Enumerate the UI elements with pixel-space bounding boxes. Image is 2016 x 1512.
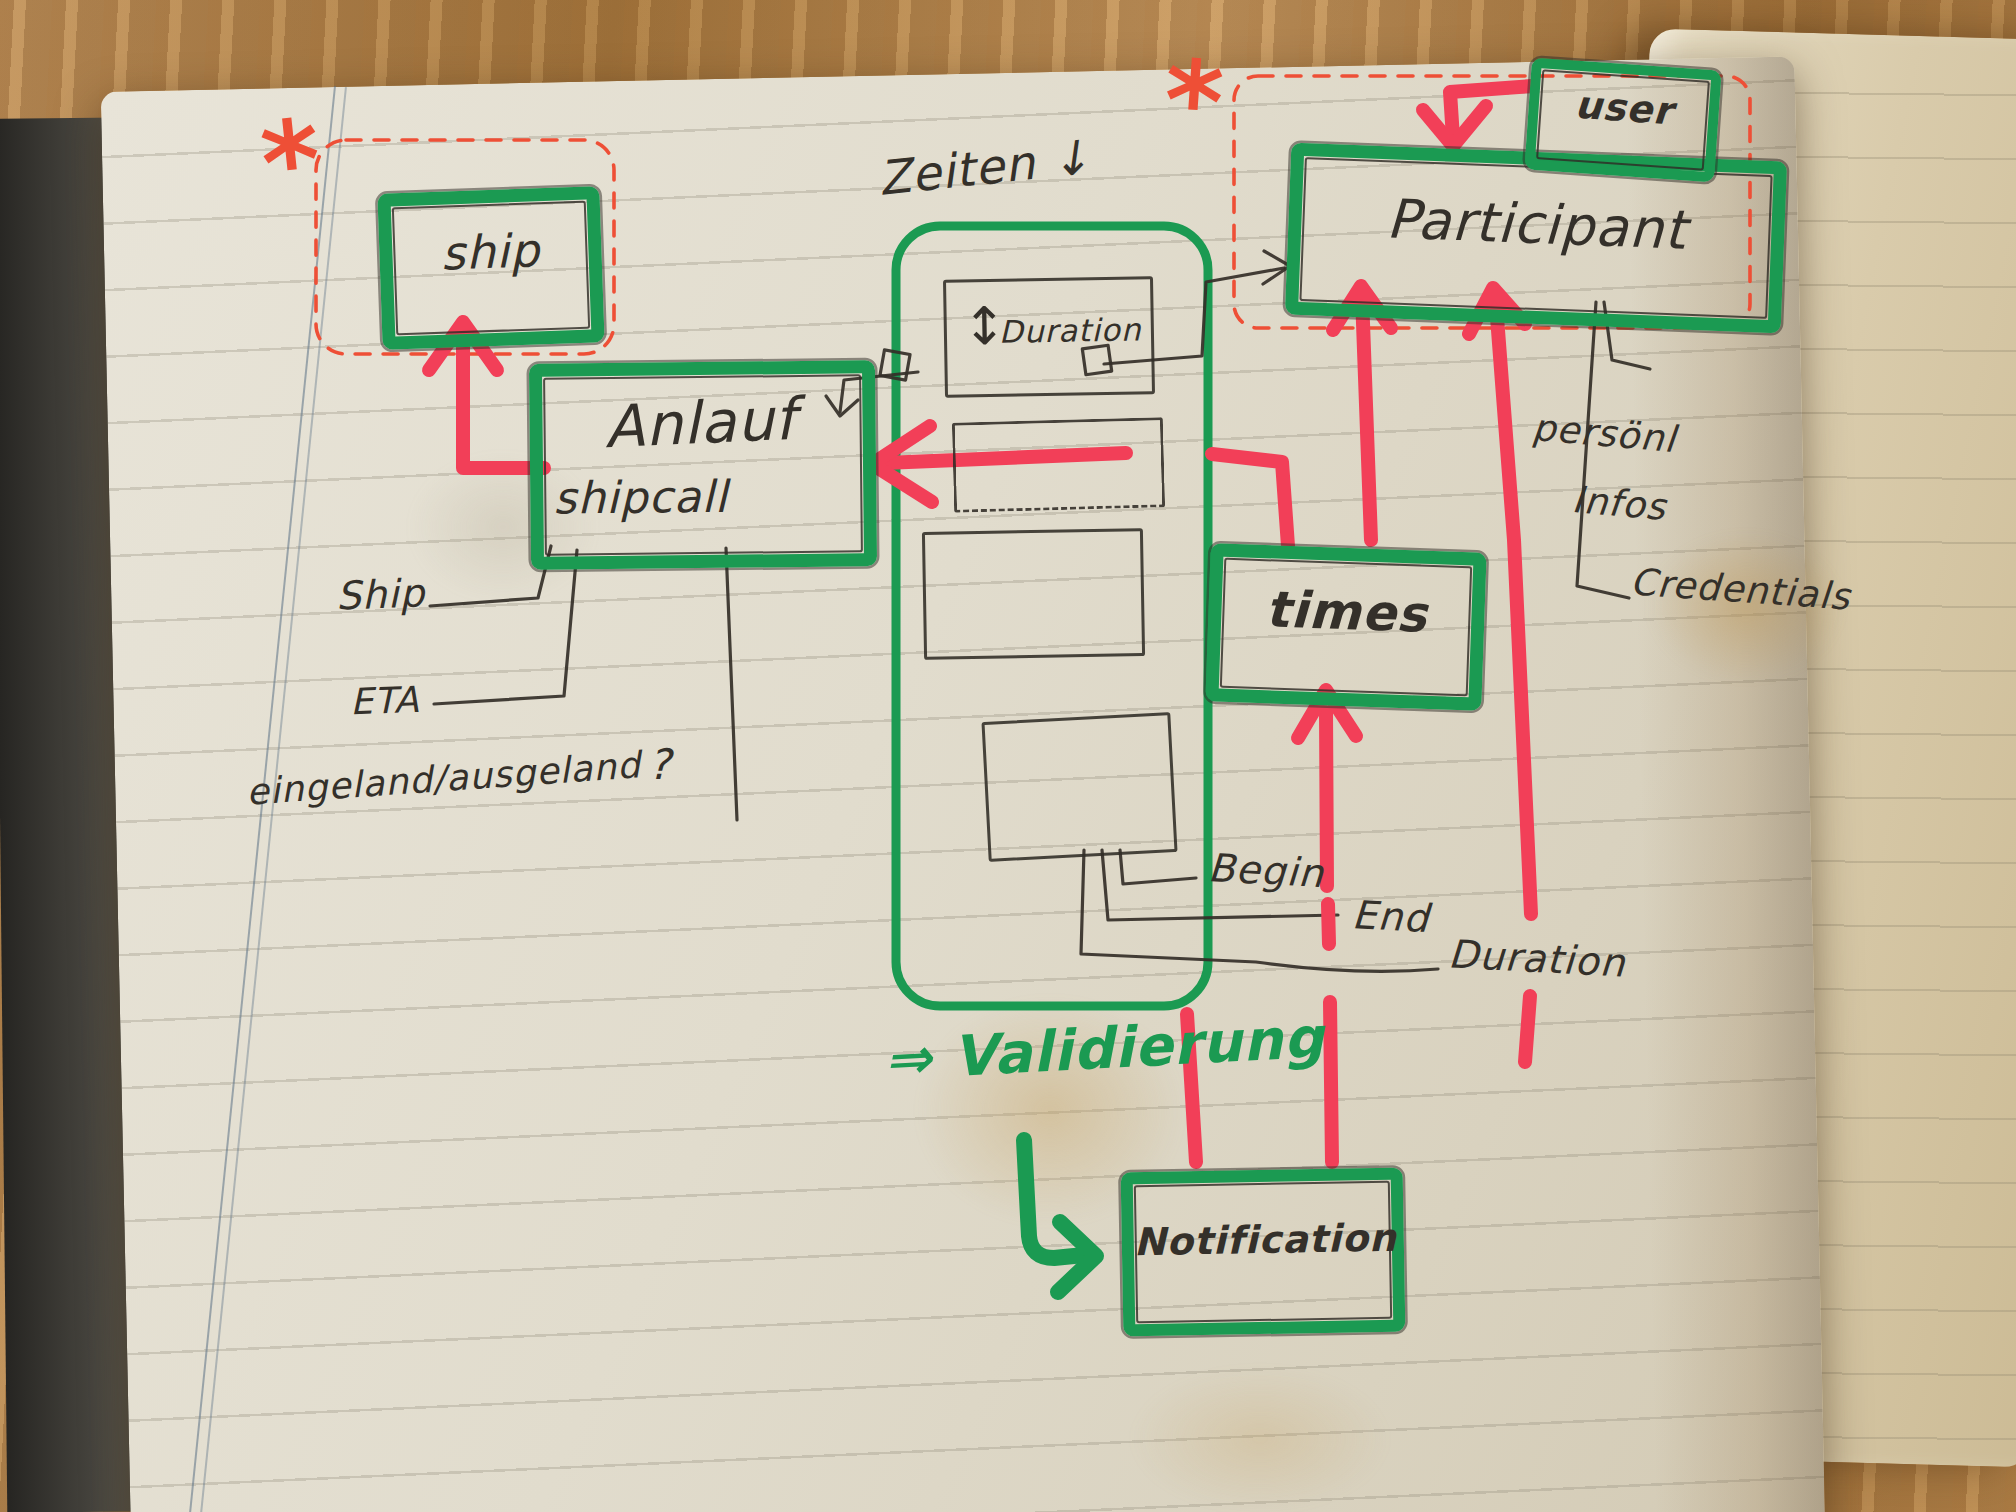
entity-duration-label: Duration [999,311,1142,349]
arrow-notification-to-times [1298,690,1356,1162]
label-eta-attribute: ETA [349,679,420,722]
connector-anchor-square [880,350,910,380]
time-slot-box-1 [952,417,1165,512]
diagram-layer: * * ship Anlauf shipcall Participant use… [0,0,2016,1512]
arrow-user-to-participant [1423,86,1532,146]
entity-ship-label: ship [392,222,590,283]
entity-shipcall-label: Anlauf [603,385,797,462]
label-question-mark: ? [648,740,671,789]
arrow-times-to-participant [1333,286,1391,540]
label-zeiten: Zeiten ↓ [876,129,1094,206]
entity-notification-label: Notification [1133,1216,1392,1264]
connector-eta-attribute [434,550,577,704]
label-duration-attribute: Duration [1447,931,1627,985]
entity-times-label: times [1221,579,1473,646]
entity-shipcall-sublabel: shipcall [553,471,728,524]
entity-ship: ship [377,186,604,350]
label-validation: ⇒ Validierung [883,1005,1326,1093]
label-personal-infos-line1: persönl [1530,406,1677,461]
entity-shipcall: Anlauf shipcall [529,360,877,570]
entity-user: user [1524,58,1721,183]
photo-of-notebook: * * ship Anlauf shipcall Participant use… [0,0,2016,1512]
arrow-validation-to-notification [1024,1140,1096,1292]
label-ship-attribute: Ship [335,570,426,618]
label-end-attribute: End [1351,892,1430,941]
label-credentials: Credentials [1629,560,1852,618]
time-slot-box-2 [922,528,1145,660]
time-slot-box-3 [981,712,1177,862]
connector-question-line [726,548,737,820]
label-inbound-outbound: eingeland/ausgeland [245,744,642,812]
entity-times: times [1205,543,1486,711]
label-begin-attribute: Begin [1207,845,1325,896]
cardinality-asterisk-ship: * [257,109,326,215]
connector-begin [1120,850,1196,884]
entity-notification: Notification [1121,1168,1406,1337]
entity-duration: ↕ Duration [943,276,1155,398]
cardinality-asterisk-participant: * [1161,50,1226,155]
label-personal-infos-line2: Infos [1570,478,1668,529]
